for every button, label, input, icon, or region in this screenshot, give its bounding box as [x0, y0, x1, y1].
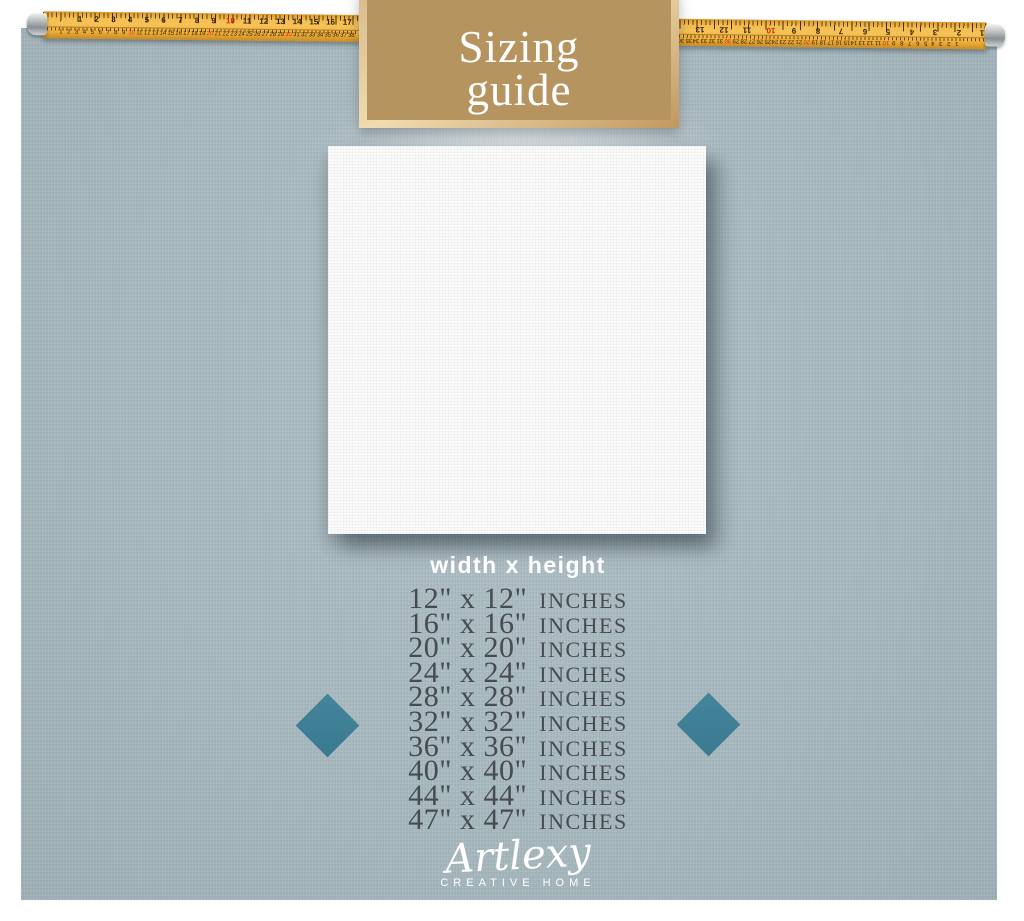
tape-number: 24 — [772, 38, 779, 44]
tape-number: 1 — [78, 16, 83, 24]
tape-number: 13 — [152, 30, 159, 36]
tape-number: 29 — [277, 32, 284, 38]
tape-number: 1 — [59, 29, 62, 35]
tape-number: 3 — [933, 28, 938, 36]
size-row: 47" x 47"INCHES — [408, 808, 627, 833]
tape-number: 3 — [111, 16, 116, 24]
tape-number: 10 — [226, 17, 235, 25]
brand-name: Artlexy — [439, 832, 596, 880]
tape-number: 7 — [106, 30, 109, 36]
tape-number: 19 — [811, 38, 818, 44]
tape-number: 16 — [326, 19, 335, 27]
tape-number: 16 — [175, 31, 182, 37]
tape-number: 9 — [211, 17, 216, 25]
size-unit: INCHES — [539, 686, 627, 711]
tape-number: 4 — [909, 27, 914, 35]
tape-number: 28 — [269, 32, 276, 38]
tape-number: 11 — [743, 25, 752, 33]
tape-number: 4 — [83, 30, 86, 36]
size-unit: INCHES — [539, 785, 627, 810]
tape-number: 30 — [724, 37, 731, 43]
width-height-label: width x height — [430, 552, 606, 579]
tape-number: 8 — [900, 39, 903, 45]
blank-canvas-preview — [328, 146, 706, 534]
tape-number: 5 — [924, 40, 927, 46]
tape-number: 33 — [309, 32, 316, 38]
tape-number: 17 — [827, 38, 834, 44]
tape-number: 11 — [875, 39, 881, 45]
tape-number: 16 — [835, 39, 842, 45]
tape-number: 6 — [916, 40, 919, 46]
tape-number: 2 — [947, 40, 950, 46]
size-list: 12" x 12"INCHES16" x 16"INCHES20" x 20"I… — [408, 587, 627, 833]
tape-number: 8 — [815, 26, 820, 34]
tape-number: 5 — [145, 16, 150, 24]
tape-number: 38 — [348, 33, 355, 39]
tape-number: 14 — [293, 18, 302, 26]
tape-number: 9 — [792, 26, 797, 34]
tape-number: 20 — [207, 31, 214, 37]
tape-number: 19 — [199, 31, 206, 37]
tape-number: 12 — [719, 25, 728, 33]
tape-number: 10 — [128, 30, 135, 36]
tape-number: 26 — [756, 38, 763, 44]
tape-number: 34 — [693, 37, 700, 43]
tape-number: 1 — [980, 28, 985, 36]
tape-number: 10 — [882, 39, 889, 45]
tape-number: 14 — [851, 39, 858, 45]
sizing-guide-banner-inner: Sizing guide — [367, 0, 671, 120]
tape-number: 23 — [780, 38, 787, 44]
brand-logo: Artlexy CREATIVE HOME — [440, 836, 595, 889]
tape-number: 6 — [98, 30, 101, 36]
tape-number: 4 — [932, 40, 935, 46]
tape-number: 2 — [94, 16, 99, 24]
tape-number: 4 — [128, 16, 133, 24]
tape-number: 3 — [75, 30, 78, 36]
tape-number: 27 — [262, 32, 269, 38]
tape-number: 17 — [343, 19, 352, 27]
tape-number: 34 — [317, 32, 324, 38]
tape-number: 18 — [819, 38, 826, 44]
tape-number: 25 — [764, 38, 771, 44]
tape-number: 2 — [956, 28, 961, 36]
tape-number: 32 — [301, 32, 308, 38]
tape-number: 35 — [324, 33, 331, 39]
tape-number: 5 — [91, 30, 94, 36]
tape-number: 2 — [67, 29, 70, 35]
tape-number: 33 — [701, 37, 708, 43]
size-unit: INCHES — [539, 711, 627, 736]
size-dimensions: 47" x 47" — [408, 803, 527, 836]
tape-number: 20 — [803, 38, 810, 44]
tape-number: 11 — [243, 18, 252, 26]
tape-number: 13 — [859, 39, 866, 45]
tape-number: 15 — [167, 31, 174, 37]
tape-number: 32 — [709, 37, 716, 43]
tape-number: 6 — [161, 17, 166, 25]
tape-number: 13 — [276, 18, 285, 26]
size-unit: INCHES — [539, 613, 627, 638]
tape-number: 7 — [839, 27, 844, 35]
banner-title-line1: Sizing — [458, 26, 579, 69]
size-unit: INCHES — [539, 736, 627, 761]
tape-metal-tip-left-icon — [27, 13, 47, 35]
tape-number: 22 — [222, 31, 229, 37]
size-unit: INCHES — [539, 662, 627, 687]
tape-number: 24 — [238, 32, 245, 38]
sizing-guide-graphic: 1234567891011121314151617 13121110987654… — [0, 0, 1024, 921]
tape-number: 15 — [309, 18, 318, 26]
tape-number: 12 — [259, 18, 268, 26]
tape-number: 15 — [843, 39, 850, 45]
tape-number: 8 — [114, 30, 117, 36]
tape-number: 27 — [748, 38, 755, 44]
tape-number: 22 — [788, 38, 795, 44]
tape-number: 6 — [862, 27, 867, 35]
tape-number: 9 — [892, 39, 895, 45]
tape-number: 7 — [908, 39, 911, 45]
tape-number: 31 — [293, 32, 300, 38]
tape-number: 30 — [285, 32, 292, 38]
tape-number: 25 — [246, 32, 253, 38]
tape-number: 11 — [136, 30, 142, 36]
tape-number: 18 — [191, 31, 198, 37]
tape-number: 36 — [332, 33, 339, 39]
tape-number: 13 — [695, 25, 704, 33]
tape-number: 17 — [183, 31, 190, 37]
tape-number: 5 — [886, 27, 891, 35]
tape-number: 14 — [160, 31, 167, 37]
tape-number: 29 — [732, 37, 739, 43]
tape-number: 12 — [867, 39, 874, 45]
tape-number: 1 — [955, 40, 958, 46]
tape-number: 3 — [939, 40, 942, 46]
tape-number: 23 — [230, 31, 237, 37]
tape-number: 28 — [740, 37, 747, 43]
sizing-guide-banner: Sizing guide — [359, 0, 679, 128]
tape-number: 7 — [178, 17, 183, 25]
size-unit: INCHES — [539, 588, 627, 613]
tape-number: 8 — [195, 17, 200, 25]
tape-metal-tip-right-icon — [985, 24, 1005, 46]
tape-number: 12 — [144, 30, 151, 36]
size-unit: INCHES — [539, 760, 627, 785]
tape-number: 21 — [215, 31, 222, 37]
banner-title-line2: guide — [467, 69, 572, 112]
tape-number: 10 — [766, 26, 775, 34]
tape-number: 26 — [254, 32, 261, 38]
tape-number: 37 — [340, 33, 347, 39]
tape-number: 35 — [685, 37, 692, 43]
size-unit: INCHES — [539, 637, 627, 662]
tape-number: 21 — [796, 38, 803, 44]
tape-number: 9 — [122, 30, 125, 36]
tape-number: 31 — [717, 37, 724, 43]
